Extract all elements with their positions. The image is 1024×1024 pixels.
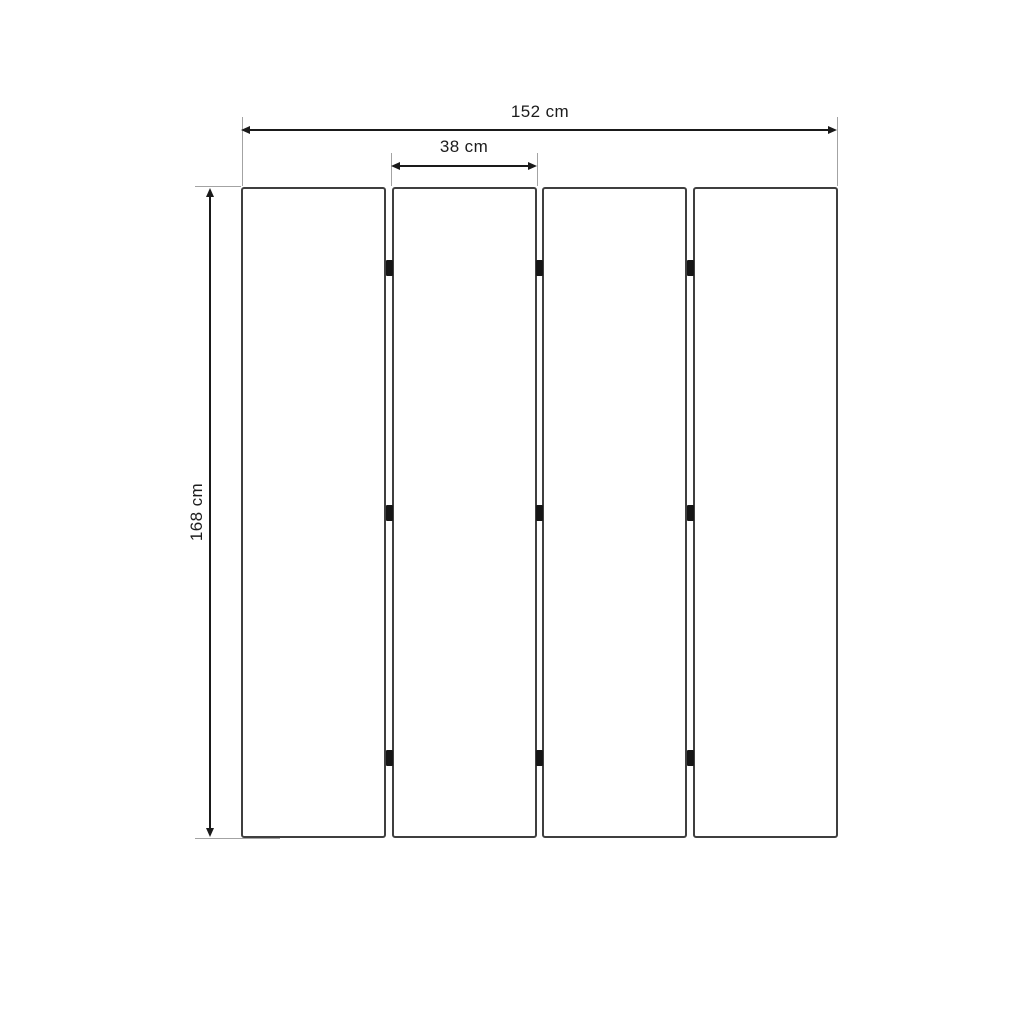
arrowhead-right-icon: [528, 162, 537, 170]
hinge-mark: [386, 260, 393, 276]
divider-panel-4: [693, 187, 838, 838]
hinge-mark: [687, 260, 694, 276]
hinge-mark: [536, 505, 543, 521]
extension-line: [391, 153, 392, 186]
extension-line: [537, 153, 538, 186]
extension-line: [195, 186, 241, 187]
extension-line: [195, 838, 280, 839]
arrowhead-left-icon: [241, 126, 250, 134]
divider-panel-3: [542, 187, 687, 838]
panel-width-label: 38 cm: [440, 137, 488, 157]
height-label: 168 cm: [187, 483, 207, 541]
arrowhead-up-icon: [206, 188, 214, 197]
total-width-label: 152 cm: [511, 102, 569, 122]
arrowhead-right-icon: [828, 126, 837, 134]
divider-panel-1: [241, 187, 386, 838]
arrowhead-down-icon: [206, 828, 214, 837]
divider-panel-2: [392, 187, 537, 838]
hinge-mark: [386, 750, 393, 766]
hinge-mark: [687, 505, 694, 521]
drawing-canvas: 152 cm 38 cm 168 cm: [0, 0, 1024, 1024]
dimension-line: [244, 129, 834, 131]
dimension-line: [209, 192, 211, 832]
hinge-mark: [536, 260, 543, 276]
dimension-line: [394, 165, 534, 167]
hinge-mark: [536, 750, 543, 766]
extension-line: [837, 117, 838, 186]
arrowhead-left-icon: [391, 162, 400, 170]
hinge-mark: [687, 750, 694, 766]
hinge-mark: [386, 505, 393, 521]
